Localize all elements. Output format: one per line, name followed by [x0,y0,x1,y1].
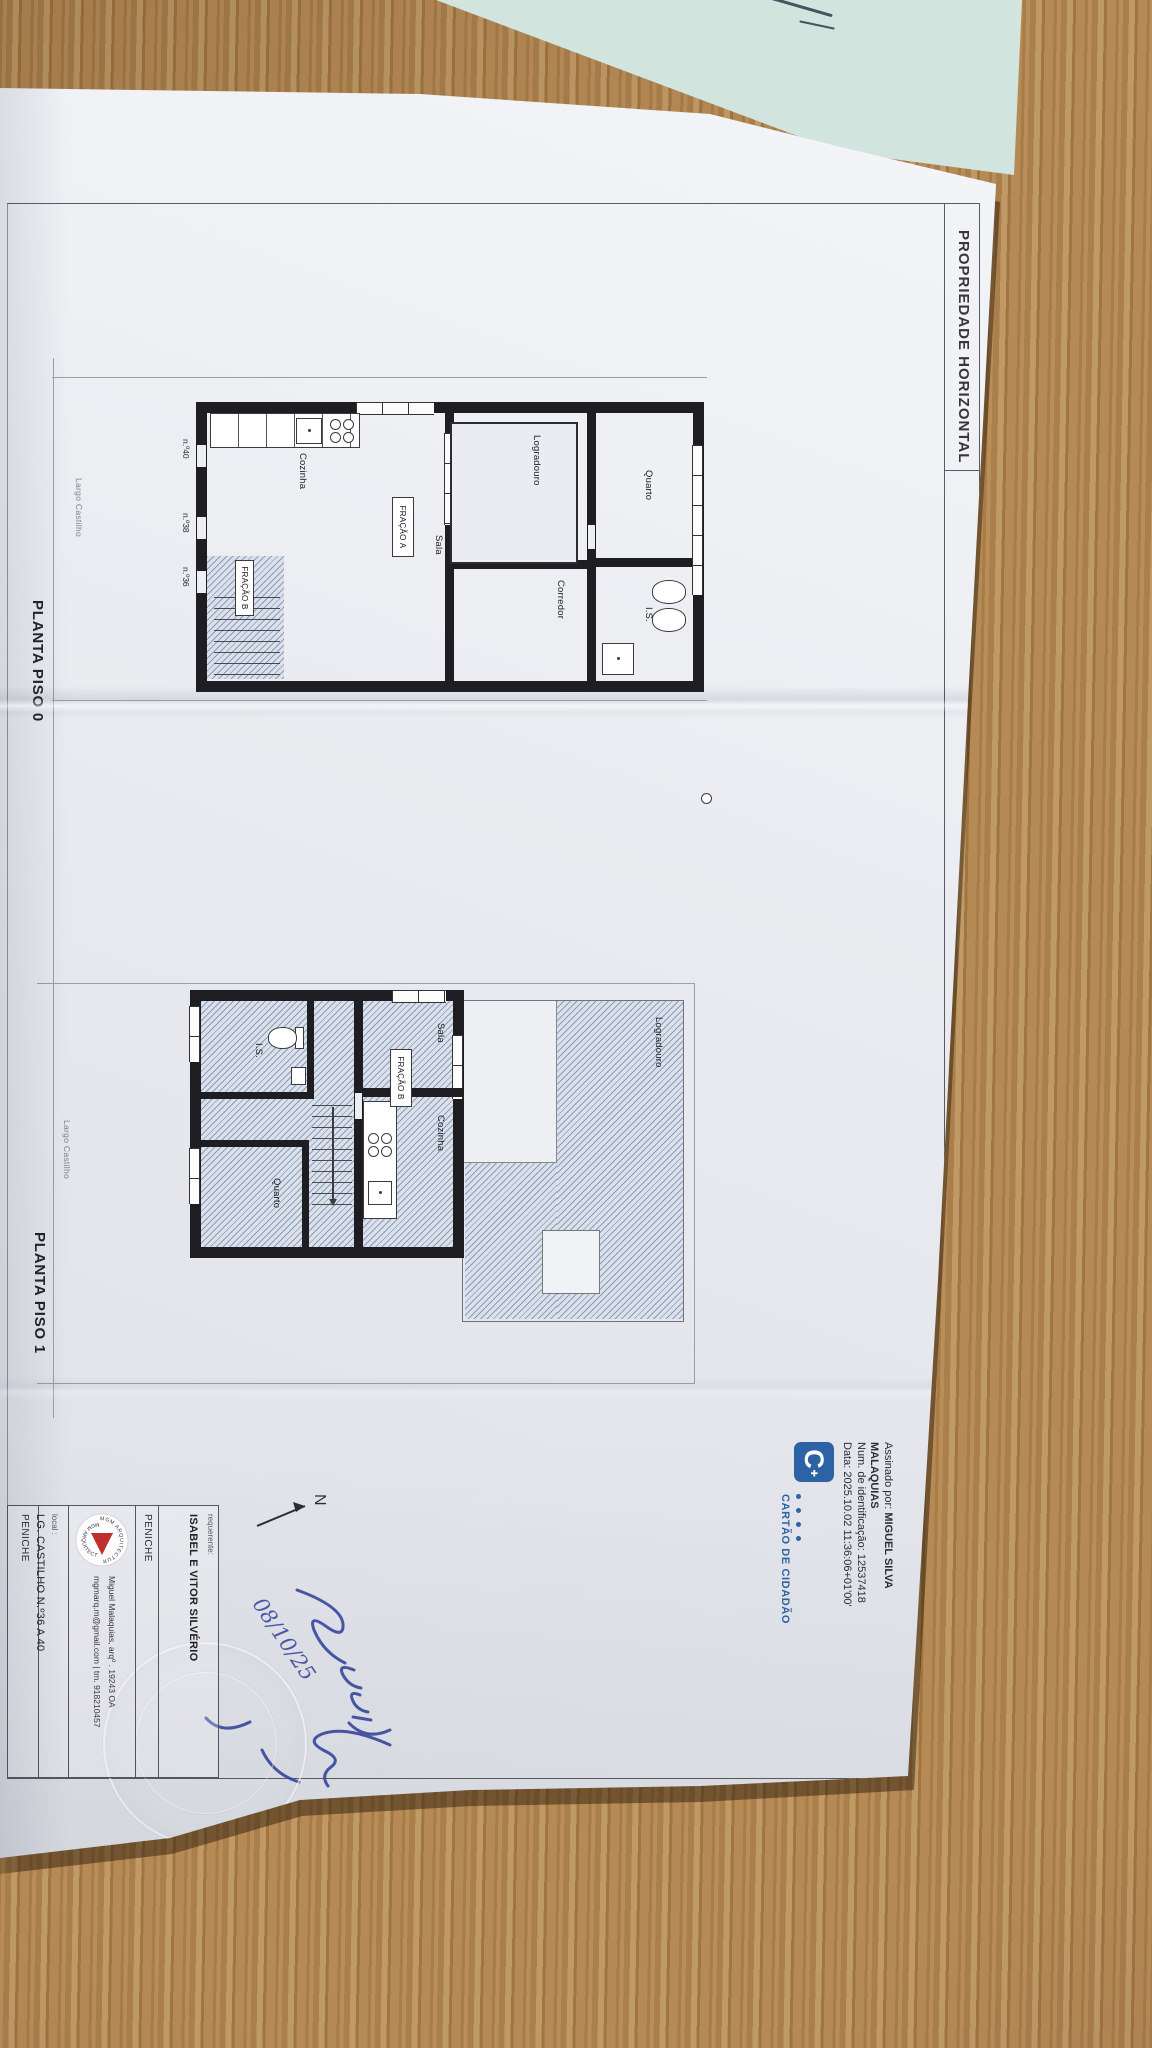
room-label-sala-piso0: Sala [433,535,444,555]
floor-plan-piso0: Quarto I.S. Corredor Logradouro Sala Coz… [152,375,712,710]
door-opening [197,571,206,593]
room-label-logradouro-piso0: Logradouro [531,435,542,486]
room-label-is-piso0: I.S. [643,607,654,622]
room-label-is-piso1: I.S. [253,1043,264,1058]
stair-direction-arrow-icon [333,1107,335,1199]
signed-by-line2: MALAQUIAS [867,1442,881,1607]
room-label-cozinha-piso1: Cozinha [435,1115,446,1151]
svg-text:N: N [311,1494,328,1506]
toilet-icon [268,1027,297,1049]
cartao-cidadao-dots-icon [796,1494,801,1541]
frame-top [979,203,980,1779]
toilet-icon [652,580,686,604]
title-block-requerente-city: PENICHE [135,1506,158,1777]
appliance-icon [368,1181,392,1205]
courtyard-piso0 [450,422,578,564]
window [692,445,703,595]
street-line [53,358,54,1418]
title-block-local: local : LG. CASTILHO N.º36 A 40 [38,1506,68,1777]
header-cell-divider [944,470,980,471]
stair-arrow-head-icon [329,1199,337,1206]
signed-by-line: Assinado por: MIGUEL SILVA [881,1442,895,1607]
floor-plan-piso1: Logradouro [152,975,712,1395]
fileref-cell-left [944,1468,980,1469]
door-number-38: n.º38 [181,513,191,533]
cartao-cidadao-logo-icon: C [794,1442,834,1482]
sink-icon [291,1067,306,1085]
street-label-piso0: Largo Castilho [74,478,84,537]
room-label-cozinha-piso0: Cozinha [297,453,308,489]
door-opening [355,1093,362,1119]
room-label-quarto-piso0: Quarto [643,470,654,500]
caption-planta-piso1: PLANTA PISO 1 [31,1232,48,1354]
frame-left [7,203,980,204]
window [189,1006,200,1062]
door-opening [588,525,595,549]
caption-planta-piso0: PLANTA PISO 0 [29,600,46,722]
signature-stamp-text: Assinado por: MIGUEL SILVA MALAQUIAS Num… [840,1442,894,1607]
room-label-logradouro-piso1: Logradouro [653,1017,664,1068]
date-line: Data: 2025.10.02 11:36:06+01'00' [840,1442,854,1607]
photo-scene: PROPRIEDADE HORIZONTAL 2025.EXP.E.01.200… [0,0,1152,2048]
unit-label-fracao-b-piso1: FRAÇÃO B [390,1049,412,1107]
window [356,402,434,415]
shower-icon [602,643,634,675]
mgm-arquitectos-logo-icon: MGM ARQUITECTURA MGM ARQUITECTURA [75,1513,129,1567]
door-number-36: n.º36 [181,567,191,587]
title-block-local-city: PENICHE [6,1506,38,1777]
door-opening [197,445,206,467]
frame-header-rule [944,203,945,1779]
cartao-cidadao-brand: CARTÃO DE CIDADÃO [779,1494,791,1624]
id-line: Num. de identificação: 12537418 [854,1442,868,1607]
room-label-quarto-piso1: Quarto [271,1178,282,1208]
door-number-40: n.º40 [181,439,191,459]
unit-label-fracao-b-piso0: FRAÇÃO B [235,560,254,616]
north-arrow-icon: N [242,1478,337,1548]
kitchen-counter [210,413,360,448]
architect-contact: Miguel Malaquias, arqº . 19243 OA mgmarq… [89,1576,119,1728]
window [189,1148,200,1204]
room-label-corredor-piso0: Corredor [555,580,566,619]
requerente-label: requerente: [206,1514,215,1769]
local-label: local : [50,1514,59,1535]
requerente-name: ISABEL E VITOR SILVÉRIO [187,1514,199,1769]
unit-label-fracao-a: FRAÇÃO A [392,497,414,557]
bidet-icon [652,608,686,632]
title-block-requerente: requerente: ISABEL E VITOR SILVÉRIO [158,1506,218,1777]
document-sheet: PROPRIEDADE HORIZONTAL 2025.EXP.E.01.200… [0,0,1152,2048]
street-label-piso1: Largo Castilho [62,1120,72,1179]
open-void [464,1001,557,1163]
file-reference: 2025.EXP.E.01.20067 - 02-10-2025 [956,1478,971,1657]
fileref-cell-right [944,1675,980,1676]
door-opening [197,517,206,539]
document-content: PROPRIEDADE HORIZONTAL 2025.EXP.E.01.200… [0,0,1152,2048]
appliance-icon [296,418,322,444]
room-label-sala-piso1: Sala [435,1023,446,1043]
annex-structure [542,1230,600,1294]
document-title: PROPRIEDADE HORIZONTAL [955,230,972,463]
title-block-architect: MGM ARQUITECTURA MGM ARQUITECTURA Miguel… [68,1506,135,1777]
window [392,990,446,1003]
title-block: requerente: ISABEL E VITOR SILVÉRIO PENI… [7,1505,219,1778]
